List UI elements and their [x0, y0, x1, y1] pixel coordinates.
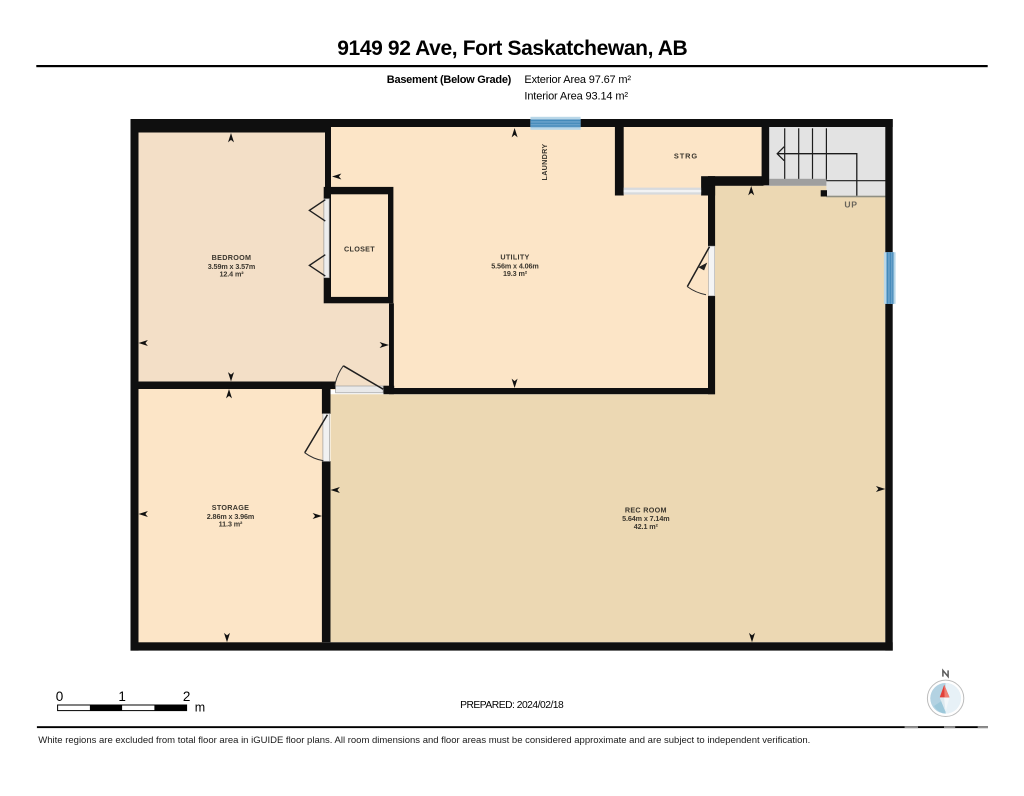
svg-text:BEDROOM: BEDROOM — [212, 253, 252, 262]
svg-text:2: 2 — [183, 689, 191, 704]
svg-text:PREPARED: 2024/02/18: PREPARED: 2024/02/18 — [460, 700, 564, 711]
svg-text:CLOSET: CLOSET — [344, 244, 375, 253]
svg-text:White regions are excluded fro: White regions are excluded from total fl… — [38, 735, 810, 746]
svg-text:1: 1 — [118, 689, 126, 704]
svg-text:19.3 m²: 19.3 m² — [503, 269, 528, 278]
svg-text:0: 0 — [56, 689, 64, 704]
svg-text:11.3 m²: 11.3 m² — [219, 520, 243, 529]
svg-text:9149 92 Ave, Fort Saskatchewan: 9149 92 Ave, Fort Saskatchewan, AB — [337, 37, 687, 60]
svg-text:STORAGE: STORAGE — [212, 503, 250, 512]
svg-text:m: m — [195, 700, 205, 714]
svg-text:UP: UP — [844, 199, 857, 209]
svg-text:LAUNDRY: LAUNDRY — [540, 144, 549, 181]
svg-text:42.1 m²: 42.1 m² — [634, 522, 659, 531]
svg-text:UTILITY: UTILITY — [500, 253, 529, 262]
svg-text:Interior Area 93.14 m²: Interior Area 93.14 m² — [524, 91, 628, 103]
svg-text:STRG: STRG — [674, 151, 698, 160]
svg-text:12.4 m²: 12.4 m² — [219, 270, 244, 279]
svg-text:Exterior Area 97.67 m²: Exterior Area 97.67 m² — [524, 74, 631, 86]
svg-text:Basement (Below Grade): Basement (Below Grade) — [387, 74, 512, 86]
